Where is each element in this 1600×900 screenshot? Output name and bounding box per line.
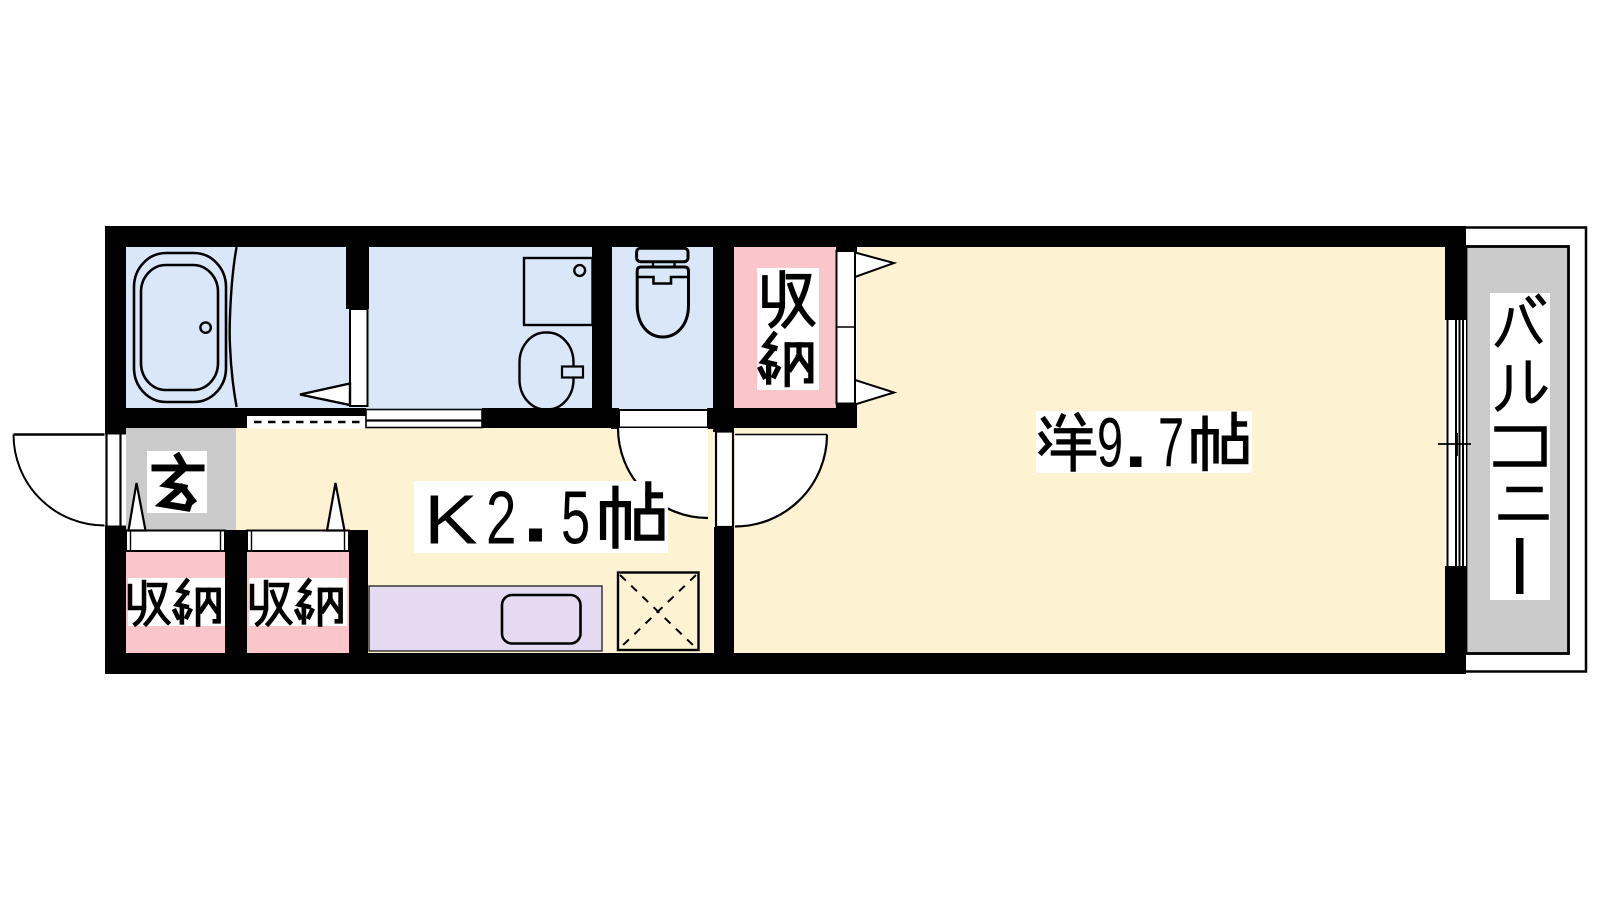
svg-text:5: 5 [561, 475, 590, 560]
svg-text:9: 9 [1097, 403, 1123, 482]
svg-text:K: K [424, 480, 478, 558]
svg-text:2: 2 [486, 476, 516, 559]
svg-text:7: 7 [1158, 403, 1184, 482]
